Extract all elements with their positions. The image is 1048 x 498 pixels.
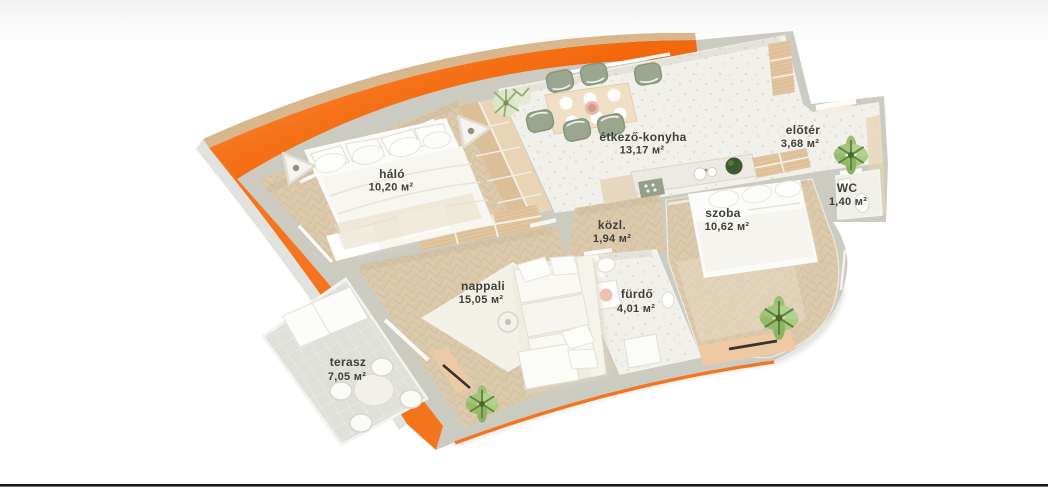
svg-text:1,40 м²: 1,40 м² <box>829 196 867 208</box>
svg-text:10,20 м²: 10,20 м² <box>369 182 414 194</box>
svg-text:WC: WC <box>837 181 858 195</box>
svg-text:10,62 м²: 10,62 м² <box>705 221 750 233</box>
svg-text:fürdő: fürdő <box>621 287 653 301</box>
svg-text:terasz: terasz <box>330 355 367 369</box>
svg-text:7,05 м²: 7,05 м² <box>328 371 366 383</box>
svg-text:3,68 м²: 3,68 м² <box>781 138 819 150</box>
svg-text:nappali: nappali <box>461 279 505 293</box>
svg-text:étkező-konyha: étkező-konyha <box>599 130 686 144</box>
svg-text:előtér: előtér <box>786 123 821 137</box>
svg-text:15,05 м²: 15,05 м² <box>459 294 504 306</box>
svg-text:háló: háló <box>379 167 405 181</box>
svg-text:közl.: közl. <box>598 218 626 232</box>
svg-text:13,17 м²: 13,17 м² <box>620 145 665 157</box>
svg-text:4,01 м²: 4,01 м² <box>617 303 655 315</box>
svg-text:szoba: szoba <box>705 206 741 220</box>
svg-text:1,94 м²: 1,94 м² <box>593 233 631 245</box>
